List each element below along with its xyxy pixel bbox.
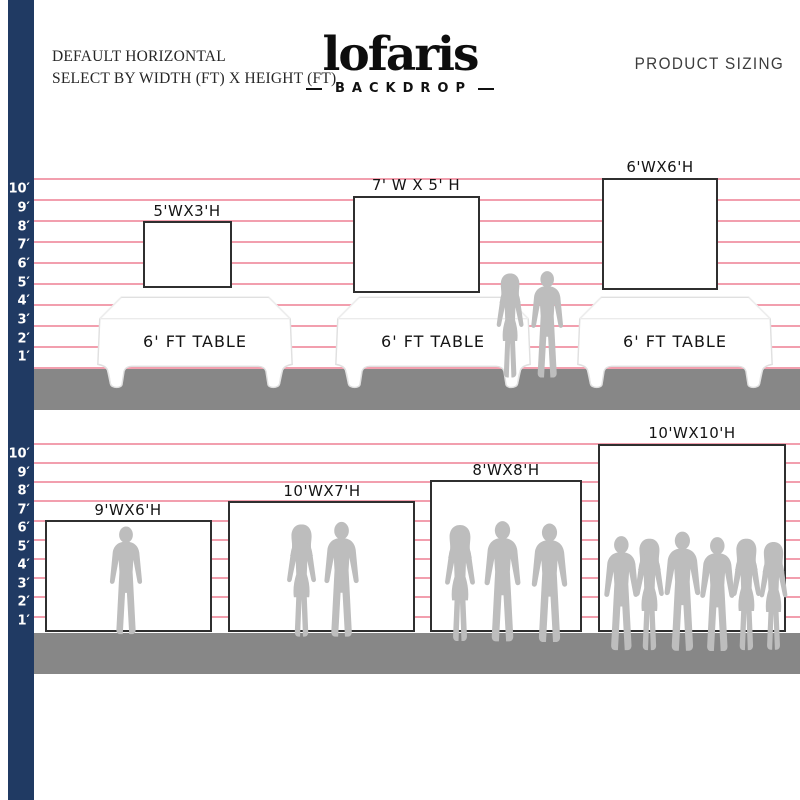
logo-tagline: BACKDROP <box>0 81 800 96</box>
banquet-table: 6' FT TABLE <box>572 296 778 390</box>
ruler-label: 3′ <box>0 313 30 328</box>
group-of-three-silhouette <box>440 518 572 644</box>
couple-silhouette <box>492 260 568 390</box>
backdrop-label: 6'WX6'H <box>626 158 693 176</box>
ruler-label: 7′ <box>0 238 30 253</box>
backdrop-label: 8'WX8'H <box>472 461 539 479</box>
banquet-table: 6' FT TABLE <box>92 296 298 390</box>
product-sizing-chart: DEFAULT HORIZONTAL SELECT BY WIDTH (FT) … <box>0 0 800 800</box>
ruler-label: 10′ <box>0 182 30 197</box>
logo-dash-left <box>306 88 322 90</box>
ruler-label: 2′ <box>0 595 30 610</box>
page-title: PRODUCT SIZING <box>634 54 784 74</box>
backdrop-7x5 <box>353 196 480 293</box>
backdrop-label: 10'WX7'H <box>283 482 360 500</box>
ruler-label: 9′ <box>0 201 30 216</box>
backdrop-label: 10'WX10'H <box>648 424 735 442</box>
couple-silhouette <box>282 518 364 642</box>
backdrop-label: 7' W X 5' H <box>372 176 460 194</box>
ruler-label: 4′ <box>0 558 30 573</box>
ruler-label: 3′ <box>0 577 30 592</box>
ruler-label: 8′ <box>0 220 30 235</box>
backdrop-6x6 <box>602 178 718 290</box>
ruler-label: 6′ <box>0 521 30 536</box>
ruler-label: 6′ <box>0 257 30 272</box>
backdrop-label: 5'WX3'H <box>153 202 220 220</box>
ruler-label: 5′ <box>0 540 30 555</box>
single-man-silhouette <box>100 526 152 636</box>
backdrop-5x3 <box>143 221 232 288</box>
group-of-six-silhouette <box>600 522 790 656</box>
table-label: 6' FT TABLE <box>92 332 298 351</box>
ruler-label: 2′ <box>0 332 30 347</box>
ruler-label: 9′ <box>0 466 30 481</box>
ruler-label: 8′ <box>0 484 30 499</box>
logo-dash-right <box>478 88 494 90</box>
ruler-label: 10′ <box>0 447 30 462</box>
ruler-bar <box>8 0 34 800</box>
ruler-label: 4′ <box>0 294 30 309</box>
ruler-label: 1′ <box>0 614 30 629</box>
ruler-label: 5′ <box>0 276 30 291</box>
ruler-label: 1′ <box>0 350 30 365</box>
backdrop-label: 9'WX6'H <box>94 501 161 519</box>
logo-tagline-text: BACKDROP <box>328 81 472 96</box>
ruler-label: 7′ <box>0 503 30 518</box>
table-label: 6' FT TABLE <box>572 332 778 351</box>
